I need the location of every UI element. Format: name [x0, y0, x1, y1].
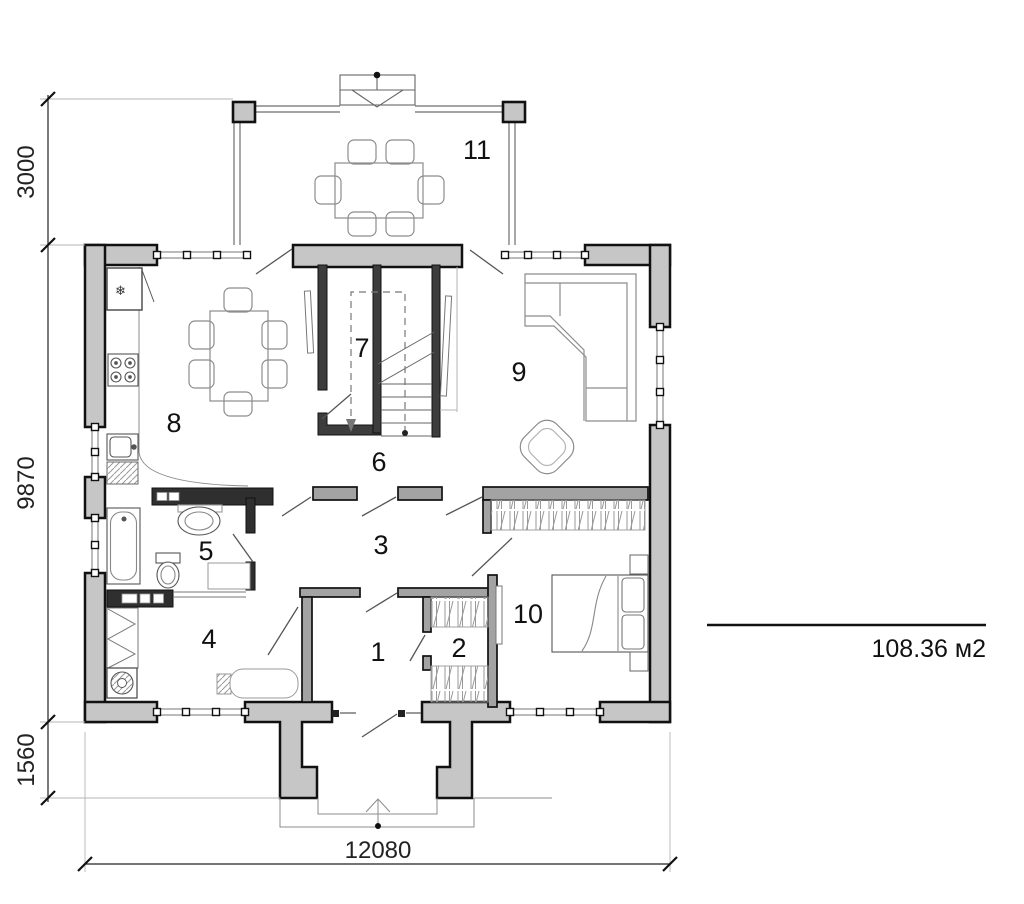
stairwell	[304, 265, 457, 437]
room-label-1: 1	[370, 637, 385, 667]
room-label-5: 5	[198, 536, 213, 566]
wardrobe-icon-room4	[107, 608, 138, 668]
wall-top-center	[293, 245, 462, 267]
room-label-6: 6	[371, 447, 386, 477]
freezer-icon: ❄	[115, 283, 126, 298]
area-note: 108.36 м2	[707, 625, 986, 663]
room-label-4: 4	[201, 624, 216, 654]
door-leaf-right	[440, 296, 451, 396]
wall-left-upper	[85, 245, 105, 427]
floor-plan-canvas: ❄	[0, 0, 1024, 904]
wardrobe-icon-closet-bottom	[431, 666, 488, 702]
room-label-10: 10	[513, 599, 543, 629]
kitchen-sink-icon	[107, 434, 138, 484]
porch-pier-left	[245, 702, 332, 798]
wall-left-mid	[85, 477, 105, 518]
dimension-house-width: 12080	[345, 837, 412, 864]
door-leaf-bedroom	[496, 586, 502, 644]
bed-icon	[552, 575, 648, 652]
terrace-entrance-marker	[340, 72, 415, 107]
area-value: 108.36 м2	[871, 635, 986, 663]
nightstand-icon-bottom	[630, 652, 648, 671]
fridge-icon: ❄	[107, 268, 154, 310]
stove-icon	[108, 354, 138, 386]
washing-machine-icon	[107, 668, 137, 698]
room-label-3: 3	[373, 530, 388, 560]
terrace-column-right	[503, 102, 525, 122]
bathroom-cabinet-icon	[208, 563, 250, 589]
floor-plan-drawing: ❄	[0, 0, 1024, 904]
wall-bottom-left	[85, 702, 157, 722]
terrace-dining-table-icon	[315, 140, 444, 236]
room-label-7: 7	[354, 333, 369, 363]
sofa-icon	[525, 274, 636, 421]
dimension-porch-depth: 1560	[13, 733, 40, 786]
room-label-8: 8	[166, 408, 181, 438]
wardrobe-icon-bedroom	[491, 500, 645, 530]
kitchen: ❄	[107, 267, 287, 486]
porch	[280, 710, 552, 829]
bathtub-icon	[107, 508, 140, 584]
washbasin-icon	[178, 505, 222, 535]
stair-door-swing	[322, 394, 351, 419]
kitchen-dining-table-icon	[189, 288, 287, 416]
kitchen-floor-arc	[139, 452, 248, 486]
wall-bottom-right	[600, 702, 670, 722]
armchair-icon	[514, 414, 579, 479]
entry-door-threshold	[332, 710, 421, 717]
toilet-icon	[156, 553, 180, 588]
bathroom	[107, 505, 250, 589]
dimension-house-depth: 9870	[13, 456, 40, 509]
wall-left-lower	[85, 573, 105, 722]
room-label-2: 2	[451, 633, 466, 663]
dimension-terrace-depth: 3000	[13, 145, 40, 198]
room-label-11: 11	[463, 135, 491, 165]
terrace-column-left	[233, 102, 255, 122]
stair-treads	[378, 332, 434, 436]
door-leaf-left	[304, 291, 313, 353]
porch-pier-right	[422, 702, 510, 798]
wall-right-lower	[650, 425, 670, 722]
wall-right-upper	[650, 245, 670, 327]
living-room	[514, 274, 636, 480]
nightstand-icon-top	[630, 555, 648, 574]
room-label-9: 9	[511, 357, 526, 387]
piano-icon	[217, 669, 298, 698]
wardrobe-icon-closet-top	[431, 597, 488, 627]
